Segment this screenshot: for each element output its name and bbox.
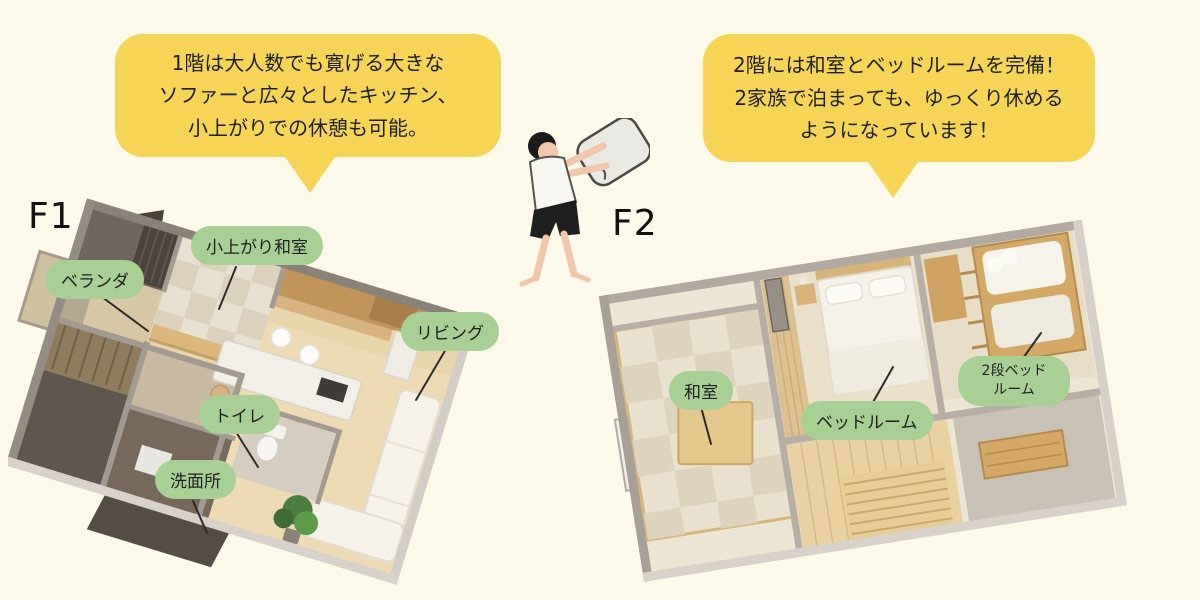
speech-bubble-f2-tail: [866, 159, 920, 198]
room-label-bunk-line1: 2段ベッド: [971, 362, 1057, 381]
room-label-living: リビング: [401, 312, 499, 351]
room-label-bunk-bedroom: 2段ベッド ルーム: [958, 356, 1070, 406]
bubble-f2-line2: 2家族で泊まっても、ゆっくり休める: [703, 82, 1095, 114]
bubble-f1-line2: ソファーと広々としたキッチン、: [115, 79, 501, 111]
bubble-f2-line1: 2階には和室とベッドルームを完備！: [703, 49, 1095, 81]
room-label-koagari-washitsu: 小上がり和室: [191, 226, 323, 265]
room-label-bedroom: ベッドルーム: [801, 401, 933, 440]
speech-bubble-f1: 1階は大人数でも寛げる大きな ソファーと広々としたキッチン、 小上がりでの休憩も…: [115, 34, 501, 157]
bubble-f1-line3: 小上がりでの休憩も可能。: [115, 112, 501, 144]
room-label-washitsu: 和室: [669, 371, 733, 410]
bubble-f1-line1: 1階は大人数でも寛げる大きな: [115, 47, 501, 79]
bubble-f2-line3: ようになっています！: [703, 114, 1095, 146]
room-label-bunk-line2: ルーム: [971, 381, 1057, 400]
floor-label-f2: F2: [612, 203, 658, 244]
floor-label-f1: F1: [28, 196, 74, 237]
room-label-toilet: トイレ: [199, 395, 280, 434]
speech-bubble-f1-tail: [283, 154, 337, 193]
speech-bubble-f2: 2階には和室とベッドルームを完備！ 2家族で泊まっても、ゆっくり休める ようにな…: [703, 34, 1095, 162]
infographic-canvas: F1 F2 1階は大人数でも寛げる大きな ソファーと広々としたキッチン、 小上が…: [0, 0, 1200, 600]
room-label-veranda: ベランダ: [46, 260, 144, 299]
room-label-senmenjo: 洗面所: [155, 460, 236, 499]
